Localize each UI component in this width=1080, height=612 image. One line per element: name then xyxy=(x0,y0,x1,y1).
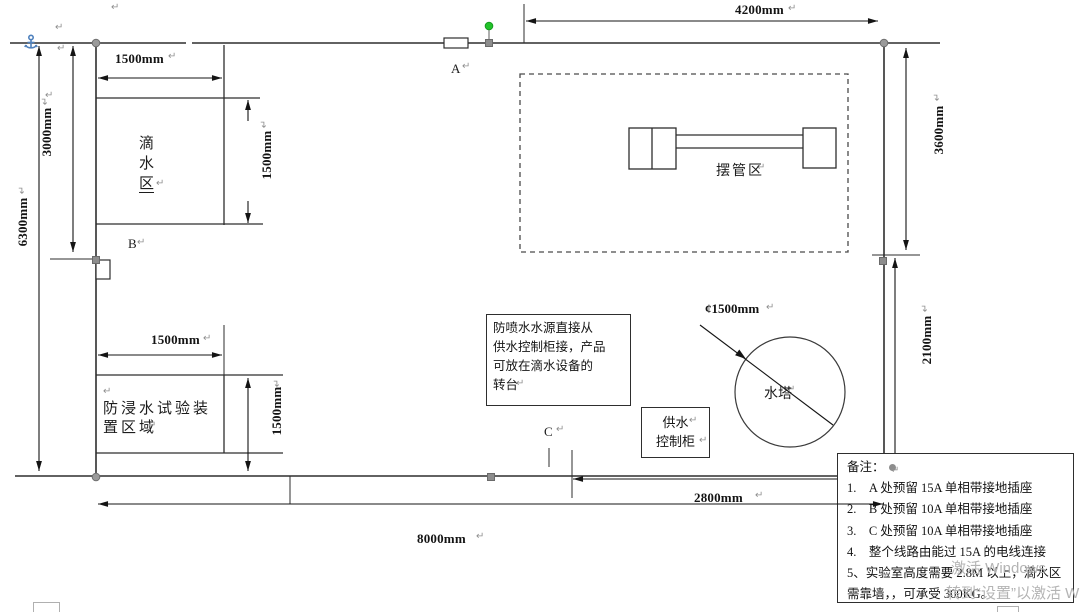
handle-square[interactable] xyxy=(93,257,100,264)
watermark-line2: 转到“设置”以激活 Windows。 xyxy=(946,582,1080,603)
handle-square[interactable] xyxy=(488,474,495,481)
handle-dot[interactable] xyxy=(880,39,888,47)
pilcrow-mark: ↵ xyxy=(891,466,899,476)
handle-square[interactable] xyxy=(880,258,887,265)
handle-dot[interactable] xyxy=(92,473,100,481)
floor-plan-document: 防喷水水源直接从 供水控制柜接，产品 可放在滴水设备的 转台 供水 控制柜 备注… xyxy=(0,0,1080,612)
watermark-line1: 激活 Windows xyxy=(951,557,1046,578)
selection-handles-layer xyxy=(0,0,1080,612)
rotation-handle-green[interactable] xyxy=(485,22,493,30)
handle-square[interactable] xyxy=(486,40,493,47)
anchor-icon[interactable] xyxy=(24,34,38,53)
handle-dot[interactable] xyxy=(92,39,100,47)
